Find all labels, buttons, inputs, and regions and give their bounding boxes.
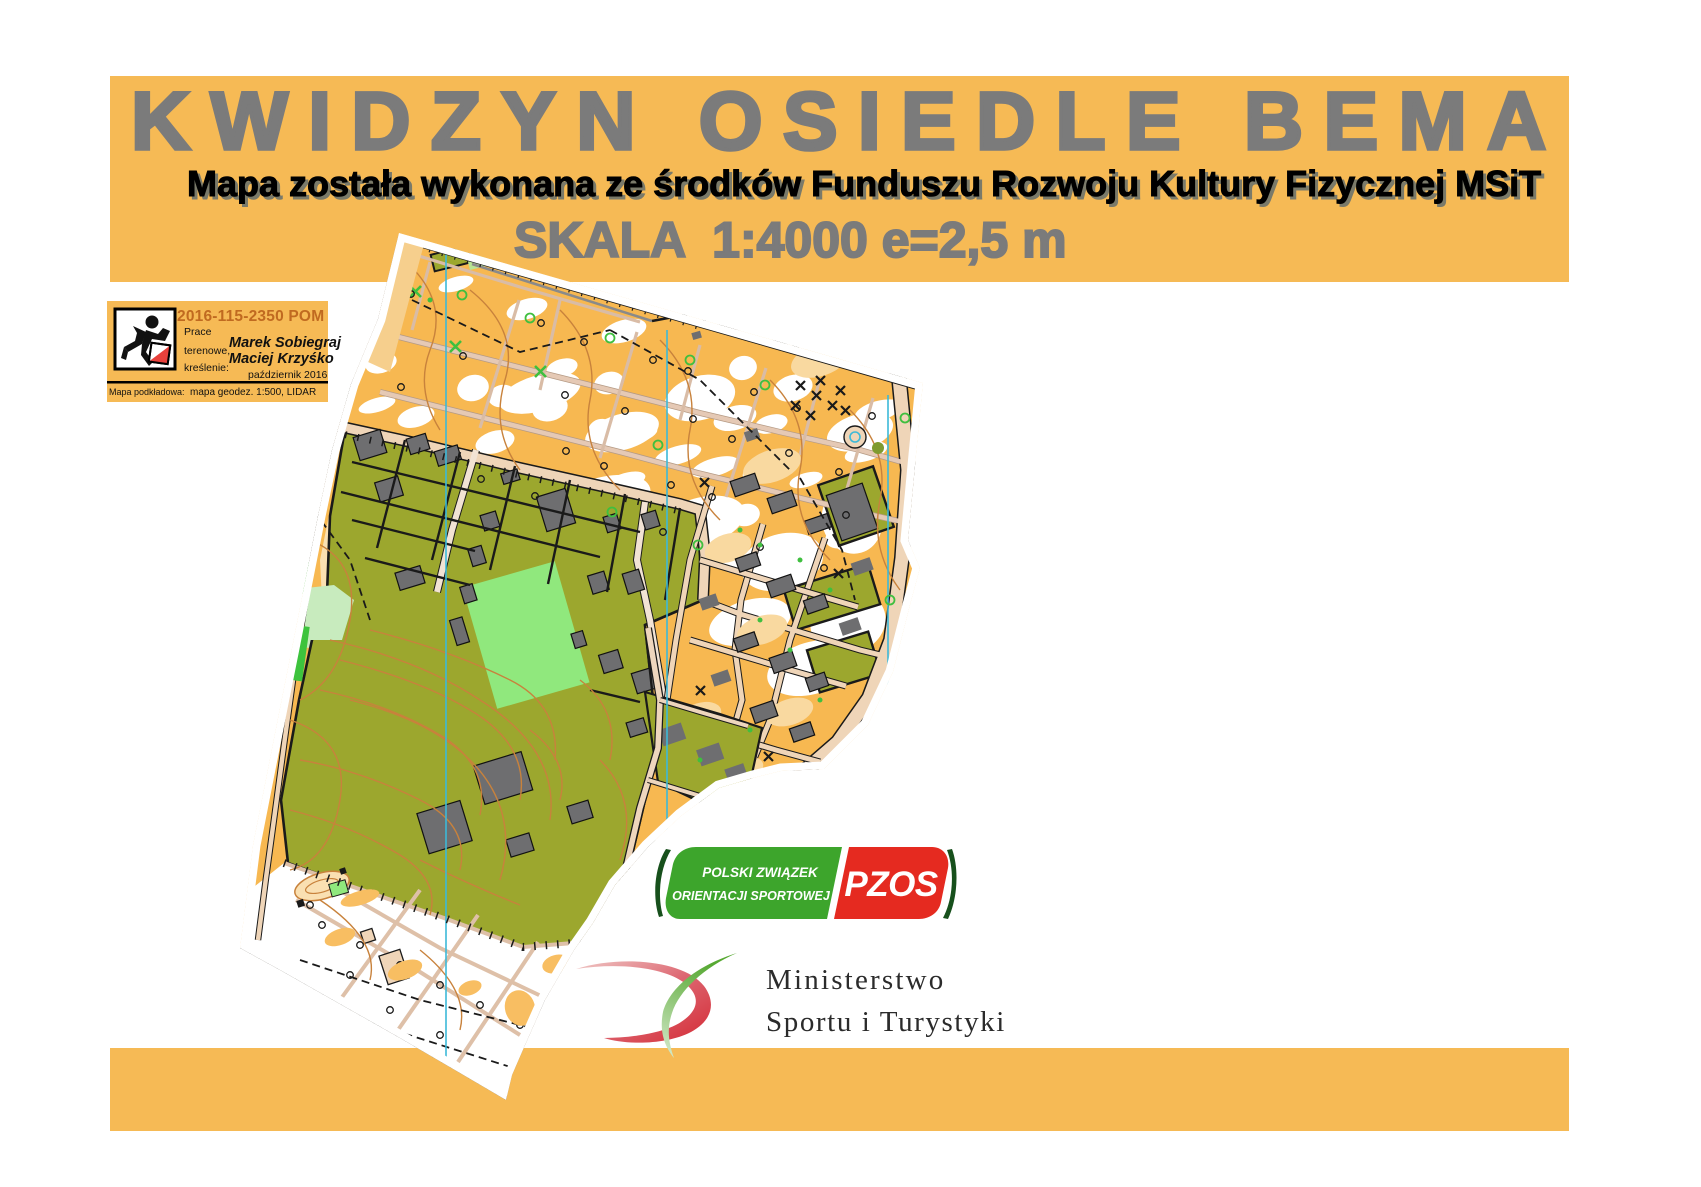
- svg-text:SKALA 1:4000 e=2,5 m: SKALA 1:4000 e=2,5 m: [514, 212, 1067, 268]
- svg-text:mapa geodez. 1:500, LIDAR: mapa geodez. 1:500, LIDAR: [190, 387, 316, 398]
- svg-text:Marek Sobiegraj: Marek Sobiegraj: [229, 335, 342, 351]
- svg-text:ORIENTACJI SPORTOWEJ: ORIENTACJI SPORTOWEJ: [672, 889, 831, 903]
- svg-text:2016-115-2350 POM: 2016-115-2350 POM: [177, 308, 324, 325]
- svg-text:POLSKI ZWIĄZEK: POLSKI ZWIĄZEK: [702, 865, 819, 880]
- svg-text:Ministerstwo: Ministerstwo: [766, 964, 945, 996]
- svg-text:PZOS: PZOS: [844, 865, 937, 904]
- svg-text:Mapa została wykonana ze środk: Mapa została wykonana ze środków Fundusz…: [187, 163, 1541, 204]
- svg-text:kreślenie:: kreślenie:: [184, 362, 229, 374]
- svg-text:Sportu i Turystyki: Sportu i Turystyki: [766, 1006, 1006, 1038]
- svg-text:Maciej Krzyśko: Maciej Krzyśko: [229, 351, 334, 367]
- svg-text:Prace: Prace: [184, 326, 212, 338]
- svg-text:KWIDZYN OSIEDLE BEMA: KWIDZYN OSIEDLE BEMA: [131, 76, 1567, 167]
- svg-text:październik 2016: październik 2016: [248, 369, 328, 381]
- svg-text:terenowe,: terenowe,: [184, 345, 230, 357]
- svg-text:Mapa podkładowa:: Mapa podkładowa:: [109, 387, 185, 397]
